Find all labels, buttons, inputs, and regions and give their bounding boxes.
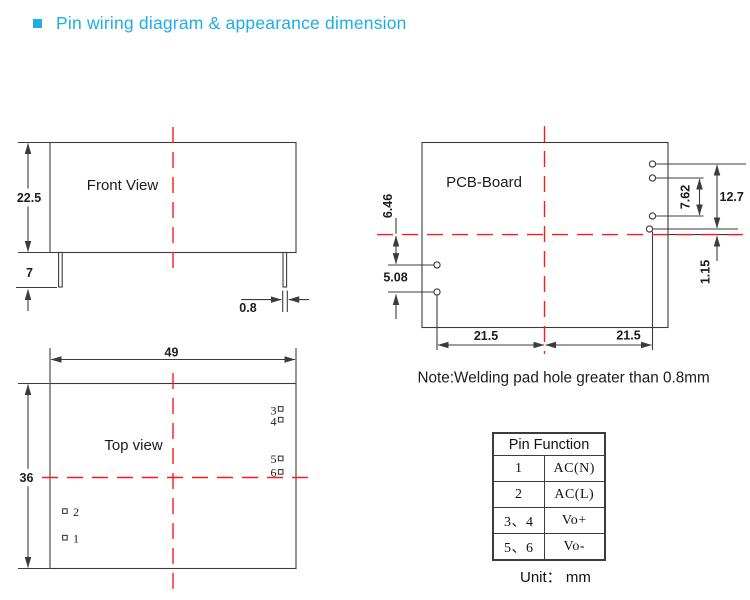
pad-hole-pin2 [434, 262, 440, 268]
pad-hole-pin6 [646, 226, 652, 232]
pad-hole-pin5 [649, 213, 655, 219]
pad-hole-pin1 [434, 289, 440, 295]
dim-left-upper: 6.46 [381, 194, 395, 218]
pin-function-table: Pin Function 1 AC(N) 2 AC(L) 3、4 Vo+ 5、6… [492, 432, 606, 561]
function-cell: AC(L) [544, 482, 605, 508]
pin-label-1: 1 [73, 532, 79, 546]
dim-bottom-right: 21.5 [616, 329, 640, 343]
pad-hole-pin3 [649, 161, 655, 167]
top-view-pin4-square [278, 417, 283, 422]
top-view-drawing [18, 348, 296, 569]
pin-label-5: 5 [271, 452, 277, 466]
pin-label-6: 6 [271, 466, 277, 480]
table-row: 5、6 Vo- [493, 534, 605, 561]
front-view-right-pin [283, 253, 287, 288]
top-view-pin5-square [278, 456, 283, 461]
front-view-left-pin [59, 253, 63, 288]
dim-height: 36 [20, 471, 34, 485]
dim-pin-length: 7 [26, 266, 33, 280]
pin-cell: 2 [493, 482, 544, 508]
pin-cell: 5、6 [493, 534, 544, 561]
table-row: 2 AC(L) [493, 482, 605, 508]
pin-label-4: 4 [271, 415, 277, 429]
function-cell: Vo+ [544, 508, 605, 534]
dim-bottom-left: 21.5 [474, 329, 498, 343]
top-view-pin3-square [278, 407, 283, 412]
dim-right-outer: 12.7 [720, 190, 744, 204]
top-view-pin6-square [278, 470, 283, 475]
dim-pin-width: 0.8 [239, 301, 256, 315]
pad-hole-pin4 [649, 175, 655, 181]
dimension-drawing-svg: Front View 22.5 7 0.8 PCB-Board 6.46 5.0… [0, 0, 750, 600]
pin-cell: 1 [493, 456, 544, 482]
front-view-label: Front View [87, 177, 159, 194]
function-cell: AC(N) [544, 456, 605, 482]
pin-table-header: Pin Function [493, 433, 605, 456]
pcb-board-drawing [388, 143, 746, 351]
pcb-board-label: PCB-Board [446, 174, 522, 191]
top-view-pin2-square [63, 509, 68, 514]
dim-right-inner: 7.62 [679, 185, 693, 209]
function-cell: Vo- [544, 534, 605, 561]
table-row: 3、4 Vo+ [493, 508, 605, 534]
pin-label-2: 2 [73, 505, 79, 519]
welding-note: Note:Welding pad hole greater than 0.8mm [418, 370, 710, 387]
pin-cell: 3、4 [493, 508, 544, 534]
pin-wiring-diagram-page: Pin wiring diagram & appearance dimensio… [0, 0, 750, 600]
dim-body-height: 22.5 [17, 191, 41, 205]
dim-left-lower: 5.08 [383, 271, 407, 285]
unit-note: Unit： mm [520, 566, 591, 587]
table-row: 1 AC(N) [493, 456, 605, 482]
front-view-drawing [16, 143, 309, 313]
dim-right-offset: 1.15 [699, 260, 713, 284]
top-view-pin1-square [63, 535, 68, 540]
dim-width: 49 [165, 346, 179, 360]
top-view-label: Top view [104, 437, 163, 454]
